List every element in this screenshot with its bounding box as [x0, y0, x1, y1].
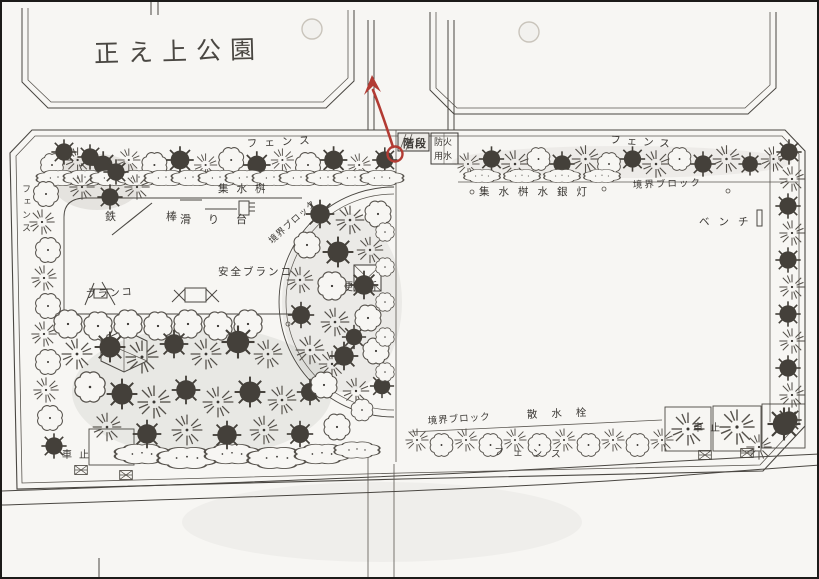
tree-symbol [620, 146, 645, 171]
punch-holes [302, 19, 539, 42]
tree-symbol [330, 342, 359, 371]
tree-symbol [84, 312, 112, 340]
label-fire-water-2: 用水 [434, 150, 452, 161]
tree-symbol [219, 148, 244, 173]
label-fence-bottom: フェンス [494, 447, 570, 461]
label-car-stop-right: 車止 [693, 421, 727, 434]
tree-symbol [779, 166, 804, 191]
fire-water-box: 防火 用水 [431, 133, 458, 164]
tree-symbol [33, 377, 58, 402]
tree-symbol [577, 434, 600, 457]
label-bench: ベンチ [699, 216, 758, 228]
red-arrow-annotation [364, 75, 403, 162]
label-fire-water-1: 防火 [434, 136, 452, 147]
tree-symbol [320, 146, 348, 174]
bench-icon [757, 210, 762, 226]
tree-symbol [323, 237, 354, 268]
tree-symbol [642, 150, 670, 178]
tree-symbol [372, 147, 397, 172]
tree-symbol [97, 184, 122, 209]
tree-symbol [31, 321, 56, 346]
tree-symbol [160, 330, 189, 359]
stairs-box: 階段 [398, 133, 429, 151]
label-stairs: 階段 [403, 136, 427, 150]
label-sprinkler: 散水栓 [527, 405, 601, 421]
tree-symbol [36, 238, 61, 263]
label-safety-swing: 安全ブランコ [218, 265, 293, 278]
tree-symbol [775, 301, 800, 326]
tree-symbol [69, 174, 94, 199]
tree-symbol [93, 413, 122, 442]
tree-symbol [124, 174, 149, 199]
tree-symbol [768, 408, 801, 441]
tree-symbol [38, 406, 63, 431]
tree-symbol [172, 415, 203, 446]
tree-symbol [746, 434, 771, 459]
label-fence-top-left: フェンス [247, 134, 317, 150]
tree-symbol [268, 386, 297, 415]
adjacent-parcel-right [430, 12, 776, 114]
tree-symbol [126, 341, 159, 374]
tree-symbol [650, 428, 673, 451]
tree-symbol [430, 434, 453, 457]
tree-symbol [250, 416, 279, 445]
tree-symbol [357, 237, 383, 263]
tree-symbol [288, 302, 314, 328]
label-boundary-block-bottom: 境界ブロック [427, 411, 491, 427]
tree-symbol [51, 139, 76, 164]
label-slide: 滑り台 [180, 212, 264, 226]
tree-symbol [713, 145, 741, 173]
label-fence-left: フェンス [20, 184, 33, 236]
tree-symbol [62, 339, 93, 370]
tree-symbol [775, 193, 800, 218]
tree-symbol [36, 350, 61, 375]
tree-symbol [626, 434, 649, 457]
tree-symbol [271, 148, 294, 171]
tree-symbol [222, 326, 255, 359]
tree-symbol [172, 376, 201, 405]
tree-symbol [779, 382, 804, 407]
tree-symbol [690, 151, 715, 176]
label-boundary-block-top: 境界ブロック [633, 177, 702, 191]
scanned-page: 階段 防火 用水 便所 [0, 0, 819, 579]
tree-symbol [350, 271, 379, 300]
tree-symbol [36, 294, 61, 319]
survey-points [163, 177, 730, 326]
tree-symbol [107, 379, 138, 410]
tree-symbol [775, 355, 800, 380]
label-car-stop-left: 車止 [62, 448, 96, 461]
tree-symbol [166, 146, 194, 174]
tree-symbol [454, 428, 477, 451]
tree-symbol [738, 152, 761, 175]
punch-hole [302, 19, 322, 39]
tree-symbol [479, 146, 504, 171]
tree-symbol [601, 428, 624, 451]
safety-swing-icon [172, 288, 219, 302]
tree-symbol [296, 336, 325, 365]
tree-symbol [203, 387, 234, 418]
tree-symbol [95, 332, 126, 363]
tree-symbol [138, 386, 171, 419]
tree-symbol [77, 144, 102, 169]
tree-symbol [775, 247, 800, 272]
tree-symbol [552, 428, 575, 451]
tree-symbol [572, 145, 600, 173]
punch-hole [519, 22, 539, 42]
label-catch-basin-lamp: 集水桝水銀灯 [479, 185, 596, 198]
tree-symbol [779, 328, 804, 353]
tree-symbol [321, 308, 350, 337]
tree-symbol [191, 339, 222, 370]
tree-symbol [287, 421, 313, 447]
tree-symbol [779, 274, 804, 299]
tree-symbol [776, 139, 801, 164]
tree-symbol [235, 377, 266, 408]
tree-symbol [29, 209, 54, 234]
page-title: 正え上公園 [94, 30, 265, 70]
park-plan-drawing: 階段 防火 用水 便所 [2, 2, 819, 579]
tree-symbol [133, 420, 162, 449]
tree-symbol [405, 428, 428, 451]
tree-symbol [254, 340, 283, 369]
tree-symbol [213, 421, 242, 450]
tree-symbol [31, 265, 56, 290]
label-catch-basin: 集水桝 [218, 182, 274, 195]
tree-symbol [103, 159, 128, 184]
tree-symbol [779, 220, 804, 245]
tree-symbol [336, 206, 365, 235]
tree-symbol [324, 414, 350, 440]
